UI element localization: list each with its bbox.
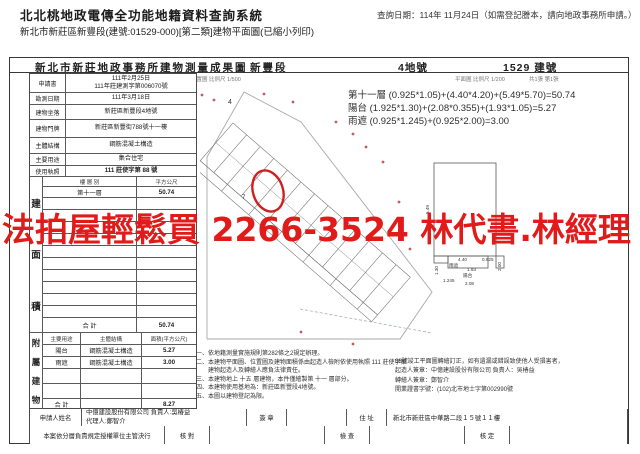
lot-number-label: 4 [228,99,232,106]
note-line: 一、依地籍測量實施規則第282條之2規定辦理。 [196,350,406,359]
area-cell: 3.00 [142,357,196,368]
row-label: 建物門牌 [30,120,66,137]
sheet-caption: 共1張 第1張 [529,75,559,83]
row-label: 建物坐落 [30,105,66,119]
side-char: 附 [32,337,41,349]
building-number: 1529 建號 [503,60,557,75]
note-line: 二、本建物平面圖、位置圖及建物面積係由起造人檢附依使用執照 111 莊使字第 [196,359,406,368]
annex-data-row: 雨遮 鋼筋混凝土構造 3.00 [43,357,196,369]
check-blank-cell [210,426,325,444]
area-side-label: 建 面 積 [30,177,43,332]
area-data-row: 第十一層 50.74 [43,187,196,198]
row-label: 主要用途 [30,154,66,165]
svg-text:4.40: 4.40 [458,257,467,262]
svg-text:2.00: 2.00 [497,262,502,271]
use-cell: 雨遮 [43,357,81,368]
floor-area-table: 建 面 積 樓 層 別 平方公尺 第十一層 50.74 [30,177,196,332]
signature-label: 簽 章 [247,409,287,426]
empty-row [43,384,196,399]
applicant-label: 申請人姓名 [30,409,82,426]
empty-row [43,270,196,282]
empty-row [43,369,196,384]
approve-label: 核 定 [465,426,510,444]
app-title: 北北桃地政電傳全功能地籍資料查詢系統 [20,5,263,24]
builder-signature-line: 起造人簽章：中億建設股份有限公司 負責人：吳椿益 [395,367,564,376]
drafter-signature-line: 轉繪人簽章：鄭智介 [395,377,564,386]
side-char: 屬 [32,356,41,368]
structure-cell: 鋼筋混凝土構造 [81,357,142,368]
svg-text:2.08: 2.08 [465,281,474,286]
annex-data-row: 陽台 鋼筋混凝土構造 5.27 [43,345,196,357]
empty-row [43,282,196,294]
col-header-area: 面積(平方公尺) [142,333,196,344]
annex-table: 附 屬 建 物 主要用途 主體結構 面積(平方公尺) 陽台 鋼筋混凝土構造 5.… [30,332,196,410]
row-value: 新莊區新豐段4地號 [66,105,196,119]
note-line: 四、本建物使用基地為：新莊區新豐段4地號。 [196,384,406,393]
row-label: 主體結構 [30,138,66,153]
svg-text:1.30: 1.30 [434,266,439,275]
note-line: 建物起造人及轉繪人應負法律責任。 [196,367,406,376]
license-number-line: 開業證書字號：(102)北市地士字第002990號 [395,386,564,395]
table-row: 主要用途 集合住宅 [30,154,196,166]
row-label: 申請書 [30,74,66,92]
table-row: 主體結構 鋼筋混凝土構造 [30,138,196,154]
col-header-floor: 樓 層 別 [43,177,137,186]
annex-side-label: 附 屬 建 物 [30,333,43,410]
row-label: 使用執照 [30,166,66,176]
sign-note-line: 88號竣工平面圖轉繪訂正，如有遺漏或錯誤致使他人受損害者， [395,358,564,367]
col-header-area: 平方公尺 [137,177,196,186]
document-subtitle: 新北市新莊區新豐段(建號:01529-000)[第二類]建物平面圖(已縮小列印) [20,24,314,38]
address-label: 住 址 [347,409,387,426]
table-row: 申請書 111年2月25日 111年莊建測字第006070號 [30,74,196,93]
row-value: 111年3月18日 [66,93,196,104]
address-value: 新北市新莊區中華路二段１５號１１樓 [387,409,627,426]
col-header-use: 主要用途 [43,333,81,344]
side-char: 建 [32,375,41,387]
approval-row: 本案依分層負責規定授權單位主管決行 核 對 檢 查 核 定 [29,426,628,444]
total-label: 合 計 [43,399,81,409]
row-label: 勘測日期 [30,93,66,104]
empty-row [43,306,196,318]
empty-row [43,294,196,306]
notes-block: 一、依地籍測量實施規則第282條之2規定辦理。 二、本建物平面圖、位置圖及建物面… [196,350,406,402]
signature-blank-cell [287,409,347,426]
signature-notes-block: 88號竣工平面圖轉繪訂正，如有遺漏或錯誤致使他人受損害者， 起造人簽章：中億建設… [395,358,564,395]
row-value: 鋼筋混凝土構造 [66,138,196,153]
side-char: 物 [32,394,41,406]
svg-text:雨遮: 雨遮 [449,262,459,269]
red-ad-watermark: 法拍屋輕鬆買 2266-3524 林代書.林經理 [0,203,640,251]
annex-total-row: 合 計 8.27 [43,399,196,409]
doc-title-row: 新北市新莊地政事務所建物測量成果圖 新豐段 4地號 1529 建號 [10,58,628,73]
floor-plan-caption: 平面圖 比例尺 1/200 [455,75,505,83]
inspect-label: 檢 查 [325,426,370,444]
check-label: 核 對 [165,426,210,444]
area-total-row: 合 計 50.74 [43,318,196,332]
query-date: 查詢日期：114年 11月24日（如需登記謄本，請向地政事務所申請。） [377,9,636,21]
table-row: 使用執照 111 莊使字第 88 號 [30,166,196,177]
table-row: 勘測日期 111年3月18日 [30,93,196,105]
row-value: 集合住宅 [66,154,196,165]
total-value: 50.74 [137,318,196,332]
note-line: 五、本圖以建物登記為限。 [196,393,406,402]
area-header-row: 樓 層 別 平方公尺 [43,177,196,187]
approve-blank-cell [510,426,627,444]
note-line: 三、本建物地上 十五 層建物，本件僅繪製第 十一 層部分。 [196,376,406,385]
area-cell: 5.27 [142,345,196,356]
svg-text:陽台: 陽台 [463,272,473,279]
section-name: 新豐段 [250,60,288,75]
annex-header-row: 主要用途 主體結構 面積(平方公尺) [43,333,196,345]
row-value: 111年2月25日 111年莊建測字第006070號 [66,74,196,92]
svg-text:1.245: 1.245 [443,278,455,283]
structure-cell: 鋼筋混凝土構造 [81,345,142,356]
empty-row [43,258,196,270]
total-label: 合 計 [43,318,137,332]
row-value: 111 莊使字第 88 號 [66,166,196,176]
side-char: 積 [31,299,41,313]
use-cell: 陽台 [43,345,81,356]
applicant-row: 申請人姓名 中億建設股份有限公司 負責人:吳椿益 代理人:鄭智介 簽 章 住 址… [29,409,628,427]
applicant-value: 中億建設股份有限公司 負責人:吳椿益 代理人:鄭智介 [82,409,247,426]
area-cell: 50.74 [137,187,196,197]
table-row: 建物坐落 新莊區新豐段4地號 [30,105,196,120]
svg-text:0.925: 0.925 [482,257,494,262]
floor-cell: 第十一層 [43,187,137,197]
table-row: 建物門牌 新莊區新豐街788號十一樓 [30,120,196,138]
lot-number: 4地號 [398,60,428,75]
inspect-blank-cell [370,426,465,444]
col-header-structure: 主體結構 [81,333,142,344]
row-value: 新莊區新豐街788號十一樓 [66,120,196,137]
approval-label: 本案依分層負責規定授權單位主管決行 [30,426,165,444]
svg-text:1.93: 1.93 [467,267,476,272]
total-value: 8.27 [142,399,196,409]
